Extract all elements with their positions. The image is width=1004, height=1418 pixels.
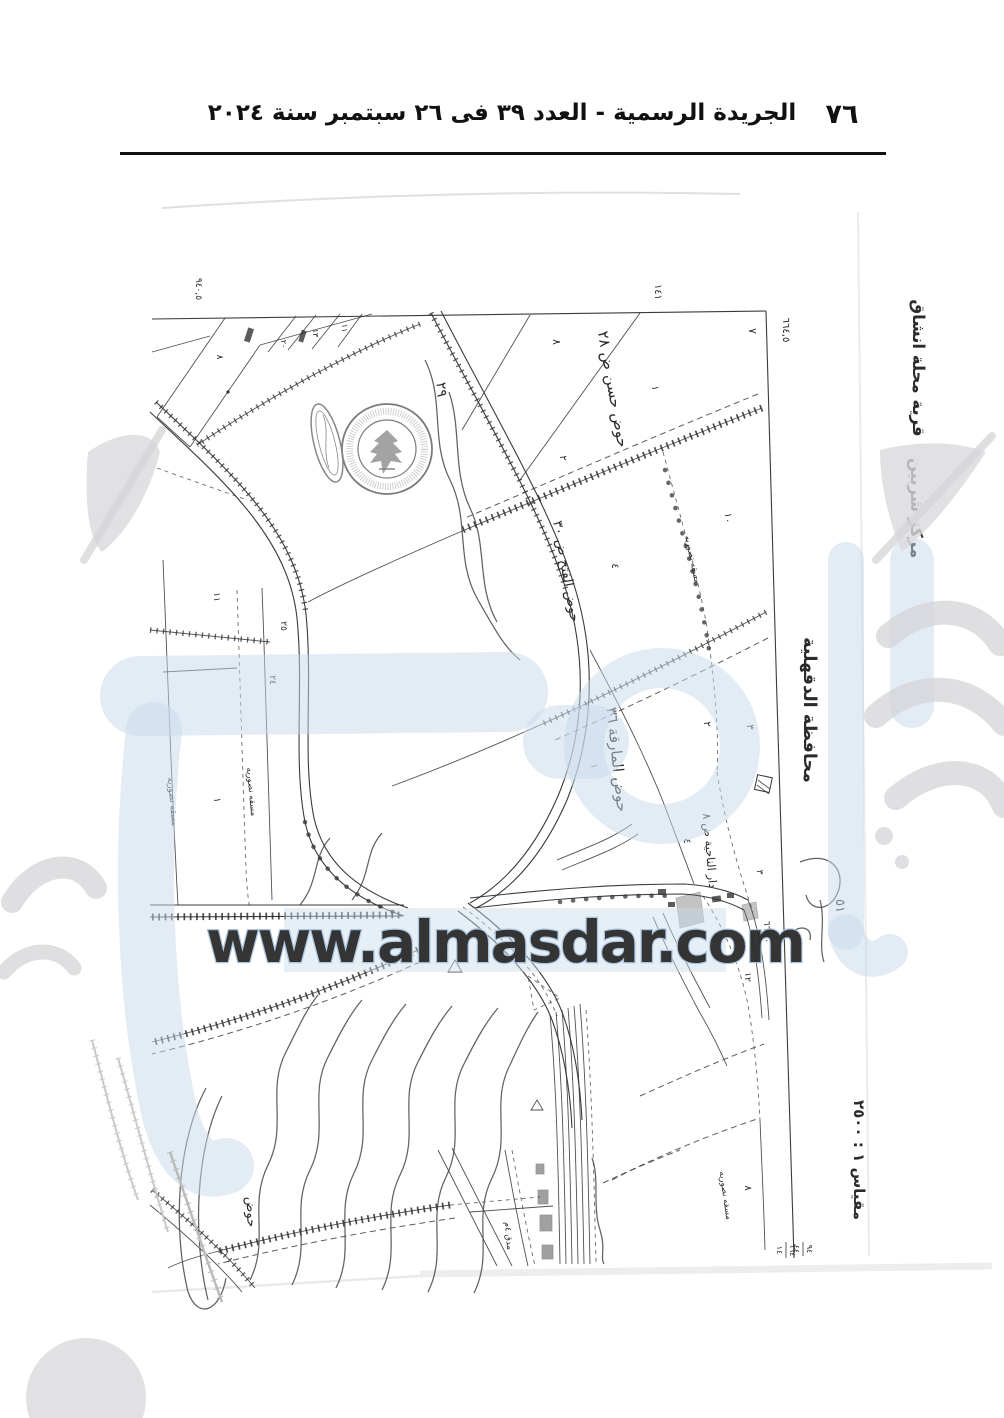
handwriting-29: ٢٩: [432, 381, 449, 397]
parcel-number: ٢٥: [278, 621, 288, 631]
basin-label-28: حوض حسن ض ٢٨: [594, 330, 632, 449]
parcel-number: ٣: [754, 870, 764, 875]
parcel-number: ١: [211, 797, 222, 802]
parcel-number: ١٠: [722, 513, 733, 524]
governorate-label: محافظة الدقهلية: [799, 637, 819, 783]
handwritten-annotations: [179, 360, 840, 1309]
field-boundaries: [150, 313, 768, 1250]
parcel-number: ٨: [214, 355, 224, 360]
parcel-number: ٨: [742, 1185, 753, 1191]
path-label: مدق ٤م: [502, 1221, 514, 1250]
parcel-number: ٧: [746, 328, 759, 334]
parcel-number: ٨: [550, 339, 563, 345]
watermark-blue-calligraphy: [140, 560, 912, 1169]
basin-label-30: حوض الفتح ض ٣٠: [549, 519, 583, 623]
eagle-emblem-icon: [370, 430, 402, 474]
scale-label: مقياس ١ : ٢٥٠٠: [850, 1100, 868, 1220]
parcel-number: ١١: [340, 324, 349, 333]
parcel-number: ٢: [557, 455, 568, 460]
canal-label: مسقه نصوريه: [717, 1171, 734, 1221]
cadastral-map: قرية محلة انشاق مركز شربين محافظة الدقهل…: [0, 0, 1004, 1418]
parcel-number: ٢: [701, 721, 712, 726]
handwriting-hawd: حوض: [242, 1196, 258, 1227]
coord-top-left: ٩٤٠,٥: [193, 278, 203, 300]
official-stamps: [305, 401, 432, 494]
watermark-url-text: www.almasdar.com: [206, 908, 804, 976]
village-label: قرية محلة انشاق: [908, 299, 928, 436]
parcel-number: ٤: [609, 563, 620, 568]
coord-top: ١٤١: [652, 284, 663, 300]
canal-label: مسقه نصوريه: [244, 767, 258, 817]
gazette-page: الجريدة الرسمية - العدد ٣٩ فى ٢٦ سبتمبر …: [0, 0, 1004, 1418]
svg-text:٤٤: ٤٤: [792, 1245, 801, 1254]
round-seal: [342, 404, 432, 494]
svg-text:٩٤: ٩٤: [805, 1245, 814, 1254]
parcel-number: ١: [649, 385, 660, 390]
parcel-number: ٢٠: [279, 340, 288, 349]
parcel-number: ١٣: [311, 329, 320, 338]
watermark-url: www.almasdar.com: [206, 908, 804, 976]
canal-label: مسقه نصوريه: [682, 535, 702, 585]
parcel-number: ١١: [211, 592, 221, 602]
svg-text:١٤: ١٤: [775, 1246, 784, 1255]
coord-top-right: ٦٦٤,٥: [780, 318, 791, 343]
